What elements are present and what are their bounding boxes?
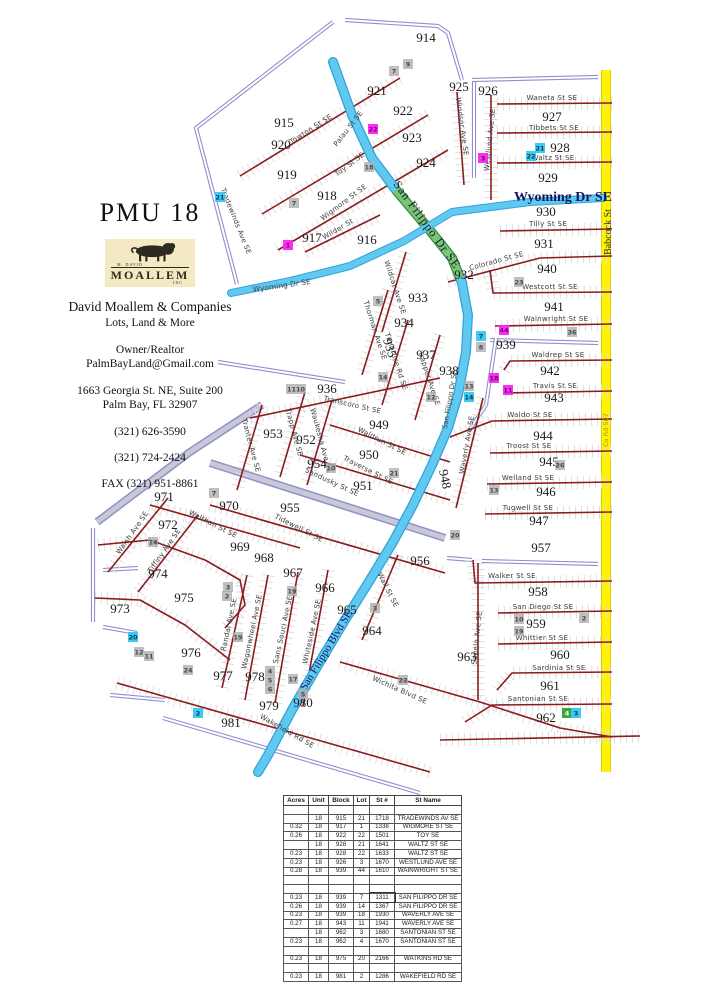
- block-number: 938: [439, 363, 459, 378]
- block-number: 973: [110, 601, 130, 616]
- block-number: 966: [315, 580, 335, 595]
- table-cell: 1610: [370, 867, 395, 876]
- street-label: Welland St SE: [502, 474, 554, 482]
- table-cell: [370, 885, 395, 894]
- lot-marker-label: 1110: [287, 386, 306, 394]
- table-cell: [284, 841, 309, 850]
- parcel-table: AcresUnitBlockLotSt #St Name18915211718T…: [283, 795, 462, 982]
- table-cell: TRADEWINDS AV SE: [395, 814, 462, 823]
- table-cell: [354, 946, 370, 955]
- block-number: 961: [540, 678, 560, 693]
- table-row: 0.321891711338WIGMORE ST SE: [284, 823, 462, 832]
- table-cell: 962: [329, 929, 354, 938]
- info-panel: PMU 18 M. DAVID MOALLEM INC David Moalle…: [44, 198, 256, 490]
- lot-marker-label: 1: [286, 242, 291, 250]
- street-label: Waldo St SE: [507, 411, 552, 419]
- table-cell: [395, 885, 462, 894]
- lot-marker-label: 14: [148, 539, 158, 547]
- table-cell: [329, 964, 354, 973]
- lot-marker-label: 20: [128, 634, 138, 642]
- lot-marker-label: 3: [373, 605, 378, 613]
- table-cell: 0.23: [284, 937, 309, 946]
- table-cell: WIGMORE ST SE: [395, 823, 462, 832]
- street-label: Windsor Ave SE: [454, 97, 470, 156]
- block-number: 964: [362, 623, 382, 638]
- table-cell: 18: [309, 858, 329, 867]
- table-row: 0.231898121286WAKEFIELD RD SE: [284, 973, 462, 982]
- table-row: 0.231893971311SAN FILIPPO DR SE: [284, 893, 462, 902]
- table-cell: 0.23: [284, 849, 309, 858]
- owner-label: Owner/Realtor: [44, 344, 256, 356]
- block-number: 950: [359, 447, 379, 462]
- table-cell: 20: [354, 955, 370, 964]
- table-cell: WAVERLY AVE SE: [395, 911, 462, 920]
- table-cell: 2: [354, 973, 370, 982]
- block-number: 918: [317, 188, 337, 203]
- table-cell: 18: [309, 893, 329, 902]
- lot-marker-label: 5: [268, 677, 273, 685]
- lot-marker-label: 5: [376, 298, 381, 306]
- table-cell: TOY SE: [395, 832, 462, 841]
- logo-main-text: MOALLEM: [111, 267, 190, 281]
- street-label: Tibbets St SE: [528, 124, 579, 132]
- moallem-logo: M. DAVID MOALLEM INC: [105, 239, 195, 287]
- street-label: Tidewell St SE: [272, 512, 324, 544]
- table-cell: 928: [329, 841, 354, 850]
- table-cell: 939: [329, 893, 354, 902]
- lot-marker-label: 22: [368, 126, 377, 134]
- block-number: 960: [550, 647, 570, 662]
- table-cell: 939: [329, 911, 354, 920]
- company-name: David Moallem & Companies: [44, 299, 256, 315]
- lot-marker-label: 8: [479, 344, 484, 352]
- block-number: 949: [369, 417, 389, 432]
- column-header: St Name: [395, 796, 462, 806]
- table-cell: 0.23: [284, 911, 309, 920]
- table-cell: 917: [329, 823, 354, 832]
- lion-icon: [113, 241, 187, 263]
- fax-number: FAX (321) 951-8861: [44, 478, 256, 490]
- street-label: Tugwell St SE: [502, 504, 553, 512]
- table-cell: 0.23: [284, 973, 309, 982]
- block-number: 955: [280, 500, 300, 515]
- table-cell: SANTONIAN ST SE: [395, 929, 462, 938]
- lot-marker-label: 11: [503, 387, 513, 395]
- table-cell: 18: [309, 955, 329, 964]
- table-cell: WAKEFIELD RD SE: [395, 973, 462, 982]
- table-cell: 3: [354, 929, 370, 938]
- table-cell: 11: [354, 920, 370, 929]
- table-cell: [284, 929, 309, 938]
- block-number: 946: [536, 484, 556, 499]
- table-cell: [395, 806, 462, 815]
- block-number: 936: [317, 381, 337, 396]
- lot-marker-label: 2: [582, 615, 587, 623]
- table-cell: 18: [309, 902, 329, 911]
- table-cell: 14: [354, 902, 370, 911]
- table-cell: 926: [329, 858, 354, 867]
- lot-marker-label: 3: [574, 710, 579, 718]
- lot-marker-label: 7: [392, 68, 397, 76]
- table-cell: [354, 885, 370, 894]
- lot-marker-label: 44: [499, 327, 509, 335]
- table-cell: [284, 946, 309, 955]
- block-number: 916: [357, 232, 377, 247]
- block-number: 927: [542, 109, 562, 124]
- table-cell: 1501: [370, 832, 395, 841]
- block-number: 929: [538, 170, 558, 185]
- block-number: 926: [478, 83, 498, 98]
- lot-marker-label: 10: [514, 616, 524, 624]
- table-cell: 2166: [370, 955, 395, 964]
- block-number: 953: [263, 426, 283, 441]
- column-header: Block: [329, 796, 354, 806]
- block-number: 919: [277, 167, 297, 182]
- lot-marker-label: 13: [464, 383, 473, 391]
- table-row: [284, 885, 462, 894]
- lot-marker-label: 11: [144, 653, 154, 661]
- lot-marker-label: 3: [481, 155, 486, 163]
- table-cell: 0.26: [284, 832, 309, 841]
- lot-marker-label: 4: [565, 710, 570, 718]
- table-cell: 1338: [370, 823, 395, 832]
- table-row: 0.2618939141367SAN FILIPPO DR SE: [284, 902, 462, 911]
- lot-marker-label: 14: [464, 394, 474, 402]
- table-cell: 22: [354, 849, 370, 858]
- table-cell: 18: [309, 814, 329, 823]
- table-cell: 939: [329, 902, 354, 911]
- table-row: 0.231896241670SANTONIAN ST SE: [284, 937, 462, 946]
- table-cell: 1680: [370, 929, 395, 938]
- block-number: 942: [540, 363, 560, 378]
- street-label: Walsh Ave SE: [115, 510, 151, 556]
- table-row: [284, 876, 462, 885]
- table-cell: [370, 946, 395, 955]
- table-cell: 1670: [370, 937, 395, 946]
- table-cell: [284, 876, 309, 885]
- column-header: Unit: [309, 796, 329, 806]
- table-cell: 18: [309, 841, 329, 850]
- block-number: 976: [181, 645, 201, 660]
- lot-marker-label: 24: [183, 667, 193, 675]
- block-number: 968: [254, 550, 274, 565]
- company-tagline: Lots, Land & More: [44, 317, 256, 329]
- table-cell: 18: [309, 849, 329, 858]
- block-number: 975: [174, 590, 194, 605]
- table-cell: 18: [309, 832, 329, 841]
- lot-marker-label: 36: [567, 329, 577, 337]
- table-cell: WATKINS RD SE: [395, 955, 462, 964]
- table-cell: [329, 885, 354, 894]
- block-number: 947: [529, 513, 549, 528]
- table-cell: [284, 964, 309, 973]
- block-number: 952: [296, 432, 316, 447]
- table-cell: [329, 806, 354, 815]
- block-number: 963: [457, 649, 477, 664]
- column-header: Acres: [284, 796, 309, 806]
- street-transcoro-st-se: [250, 378, 440, 418]
- table-cell: [309, 876, 329, 885]
- table-row: 0.2618922221501TOY SE: [284, 832, 462, 841]
- street-label: San Diego St SE: [513, 603, 574, 611]
- lot-marker-label: 21: [535, 145, 545, 153]
- block-number: 932: [454, 267, 474, 282]
- block-number: 923: [402, 130, 422, 145]
- lot-marker-label: 21: [389, 470, 399, 478]
- lot-marker-label: 10: [326, 465, 336, 473]
- table-cell: WALTZ ST SE: [395, 849, 462, 858]
- block-number: 951: [353, 478, 373, 493]
- block-number: 948: [436, 468, 455, 490]
- table-cell: [284, 806, 309, 815]
- table-cell: 3: [354, 858, 370, 867]
- lot-marker-label: 7: [292, 200, 297, 208]
- table-cell: 4: [354, 937, 370, 946]
- table-cell: [329, 876, 354, 885]
- table-cell: 975: [329, 955, 354, 964]
- street-label: Wainwright St SE: [524, 315, 589, 323]
- block-number: 920: [271, 137, 291, 152]
- table-cell: 1941: [370, 920, 395, 929]
- lot-marker-label: 2: [225, 593, 230, 601]
- lot-marker-label: 13: [489, 487, 498, 495]
- street-label: Walker St SE: [488, 572, 536, 580]
- table-cell: 0.23: [284, 858, 309, 867]
- table-cell: [395, 876, 462, 885]
- table-cell: 18: [309, 911, 329, 920]
- block-number: 939: [496, 337, 516, 352]
- block-number: 943: [544, 390, 564, 405]
- table-row: 0.2318939181930WAVERLY AVE SE: [284, 911, 462, 920]
- table-cell: 1670: [370, 858, 395, 867]
- lot-marker-label: 7: [212, 490, 217, 498]
- street-label: Troost St SE: [505, 442, 551, 450]
- block-number: 969: [230, 539, 250, 554]
- table-cell: SAN FILIPPO DR SE: [395, 893, 462, 902]
- lot-marker-label: 12: [426, 394, 435, 402]
- table-cell: [395, 946, 462, 955]
- table-cell: 0.28: [284, 867, 309, 876]
- table-cell: [309, 964, 329, 973]
- address-line-1: 1663 Georgia St. NE, Suite 200: [44, 385, 256, 397]
- block-number: 940: [537, 261, 557, 276]
- lot-marker-label: 22: [398, 677, 407, 685]
- table-cell: WAVERLY AVE SE: [395, 920, 462, 929]
- phone-number-2: (321) 724-2424: [44, 452, 256, 464]
- block-number: 967: [283, 565, 303, 580]
- table-row: 18915211718TRADEWINDS AV SE: [284, 814, 462, 823]
- block-number: 979: [259, 698, 279, 713]
- road-label: Co Rd 507: [602, 413, 610, 447]
- table-cell: WESTLUND AVE SE: [395, 858, 462, 867]
- street-label: Santonian St SE: [508, 695, 568, 703]
- block-number: 974: [148, 566, 168, 581]
- block-number: 933: [408, 290, 428, 305]
- table-cell: 18: [354, 911, 370, 920]
- table-cell: [370, 876, 395, 885]
- table-cell: 1930: [370, 911, 395, 920]
- block-number: 981: [221, 715, 241, 730]
- lot-marker-label: 19: [287, 588, 297, 596]
- table-cell: SAN FILIPPO DR SE: [395, 902, 462, 911]
- block-number: 934: [394, 315, 414, 330]
- table-cell: 18: [309, 929, 329, 938]
- lot-marker-label: 3: [226, 584, 231, 592]
- table-cell: 18: [309, 937, 329, 946]
- block-number: 954: [307, 456, 327, 471]
- street-label: Waverly Ave SE: [458, 415, 476, 474]
- plat-map-page: Towton St SEPalau St SEToy St SEWigmore …: [0, 0, 720, 1008]
- lot-marker-label: 7: [479, 333, 484, 341]
- table-row: 0.2718943111941WAVERLY AVE SE: [284, 920, 462, 929]
- lot-marker-label: 14: [378, 374, 388, 382]
- block-number: 957: [531, 540, 551, 555]
- table-row: 0.2318975202166WATKINS RD SE: [284, 955, 462, 964]
- block-number: 928: [550, 140, 570, 155]
- lot-marker-label: 19: [514, 628, 524, 636]
- street-waltz-st-se: [497, 162, 612, 163]
- table-cell: [309, 885, 329, 894]
- block-number: 921: [367, 83, 387, 98]
- road-label: Babcock St: [603, 209, 614, 255]
- block-number: 956: [410, 553, 430, 568]
- table-cell: 18: [309, 823, 329, 832]
- table-cell: 18: [309, 973, 329, 982]
- table-cell: [284, 814, 309, 823]
- table-row: [284, 946, 462, 955]
- block-number: 937: [416, 347, 436, 362]
- table-cell: 939: [329, 867, 354, 876]
- table-cell: 1367: [370, 902, 395, 911]
- block-number: 924: [416, 155, 436, 170]
- column-header: Lot: [354, 796, 370, 806]
- table-row: 18928211641WALTZ ST SE: [284, 841, 462, 850]
- table-cell: 928: [329, 849, 354, 858]
- lot-marker-label: 6: [268, 686, 273, 694]
- lot-marker-label: 26: [555, 462, 565, 470]
- lot-marker-label: 20: [450, 532, 460, 540]
- page-title: PMU 18: [44, 198, 256, 228]
- street-label: Waltz St SE: [532, 154, 575, 162]
- block-number: 925: [449, 79, 469, 94]
- street-label: Sardinia St SE: [532, 664, 585, 672]
- table-cell: 22: [354, 832, 370, 841]
- street-label: Towton St SE: [287, 113, 333, 147]
- table-cell: [329, 946, 354, 955]
- street-label: Waldrep St SE: [531, 351, 584, 359]
- block-number: 931: [534, 236, 554, 251]
- table-cell: 0.26: [284, 902, 309, 911]
- lot-marker-label: 18: [489, 375, 499, 383]
- table-cell: 0.27: [284, 920, 309, 929]
- block-number: 941: [544, 299, 564, 314]
- table-cell: 18: [309, 920, 329, 929]
- table-cell: 943: [329, 920, 354, 929]
- table-cell: 18: [309, 867, 329, 876]
- table-cell: 21: [354, 841, 370, 850]
- block-number: 917: [302, 230, 322, 245]
- table-cell: 962: [329, 937, 354, 946]
- email-text: PalmBayLand@Gmail.com: [44, 358, 256, 370]
- street-label: Westcott St SE: [522, 283, 578, 291]
- street-label: Travis St SE: [532, 382, 577, 390]
- block-number: 944: [533, 428, 553, 443]
- table-cell: 1633: [370, 849, 395, 858]
- block-number: 978: [245, 669, 265, 684]
- table-cell: 1311: [370, 893, 395, 902]
- table-cell: [354, 876, 370, 885]
- block-number: 962: [536, 710, 556, 725]
- lot-marker-label: 5: [301, 691, 306, 699]
- table-cell: [309, 806, 329, 815]
- block-number: 930: [536, 204, 556, 219]
- lot-marker-label: 22: [526, 153, 535, 161]
- street-tilly-st-se: [500, 229, 612, 231]
- table-cell: [370, 806, 395, 815]
- block-number: 958: [528, 584, 548, 599]
- table-row: [284, 806, 462, 815]
- street-label: Tilly St SE: [528, 220, 567, 228]
- table-cell: 1718: [370, 814, 395, 823]
- street-waneta-st-se: [497, 103, 612, 104]
- boundary-road: [345, 20, 462, 80]
- table-cell: SANTONIAN ST SE: [395, 937, 462, 946]
- table-cell: [370, 964, 395, 973]
- street-tibbets-st-se: [497, 132, 612, 133]
- logo-sub-text: INC: [173, 281, 183, 285]
- table-cell: 44: [354, 867, 370, 876]
- lot-marker-label: 19: [233, 634, 243, 642]
- table-cell: 0.32: [284, 823, 309, 832]
- phone-number-1: (321) 626-3590: [44, 426, 256, 438]
- table-header-row: AcresUnitBlockLotSt #St Name: [284, 796, 462, 806]
- lot-marker-label: 2: [196, 710, 201, 718]
- table-row: 0.2818939441610WAINWRIGHT ST SE: [284, 867, 462, 876]
- table-cell: 981: [329, 973, 354, 982]
- block-number: 972: [158, 517, 178, 532]
- table-cell: 922: [329, 832, 354, 841]
- block-number: 959: [526, 616, 546, 631]
- table-cell: 7: [354, 893, 370, 902]
- block-number: 915: [274, 115, 294, 130]
- table-row: 1896231680SANTONIAN ST SE: [284, 929, 462, 938]
- street-wainwright-st-se: [495, 324, 612, 326]
- column-header: St #: [370, 796, 395, 806]
- table-cell: 1286: [370, 973, 395, 982]
- table-cell: 1: [354, 823, 370, 832]
- table-cell: WAINWRIGHT ST SE: [395, 867, 462, 876]
- block-number: 971: [154, 489, 174, 504]
- table-cell: 21: [354, 814, 370, 823]
- lot-marker-label: 23: [514, 279, 523, 287]
- block-number: 965: [337, 602, 357, 617]
- lot-marker-label: 12: [134, 649, 143, 657]
- table-cell: [354, 806, 370, 815]
- block-number: 914: [416, 30, 436, 45]
- table-cell: [354, 964, 370, 973]
- block-number: 922: [393, 103, 413, 118]
- road-label: Wyoming Dr SE: [514, 190, 612, 205]
- street-label: Waneta St SE: [527, 94, 578, 102]
- table-row: 0.231892631670WESTLUND AVE SE: [284, 858, 462, 867]
- table-cell: [284, 885, 309, 894]
- table-cell: 1641: [370, 841, 395, 850]
- lot-marker-label: 9: [406, 61, 411, 69]
- lot-marker-label: 17: [288, 676, 297, 684]
- table-cell: 0.23: [284, 955, 309, 964]
- table-cell: [395, 964, 462, 973]
- lot-marker-label: 18: [364, 164, 374, 172]
